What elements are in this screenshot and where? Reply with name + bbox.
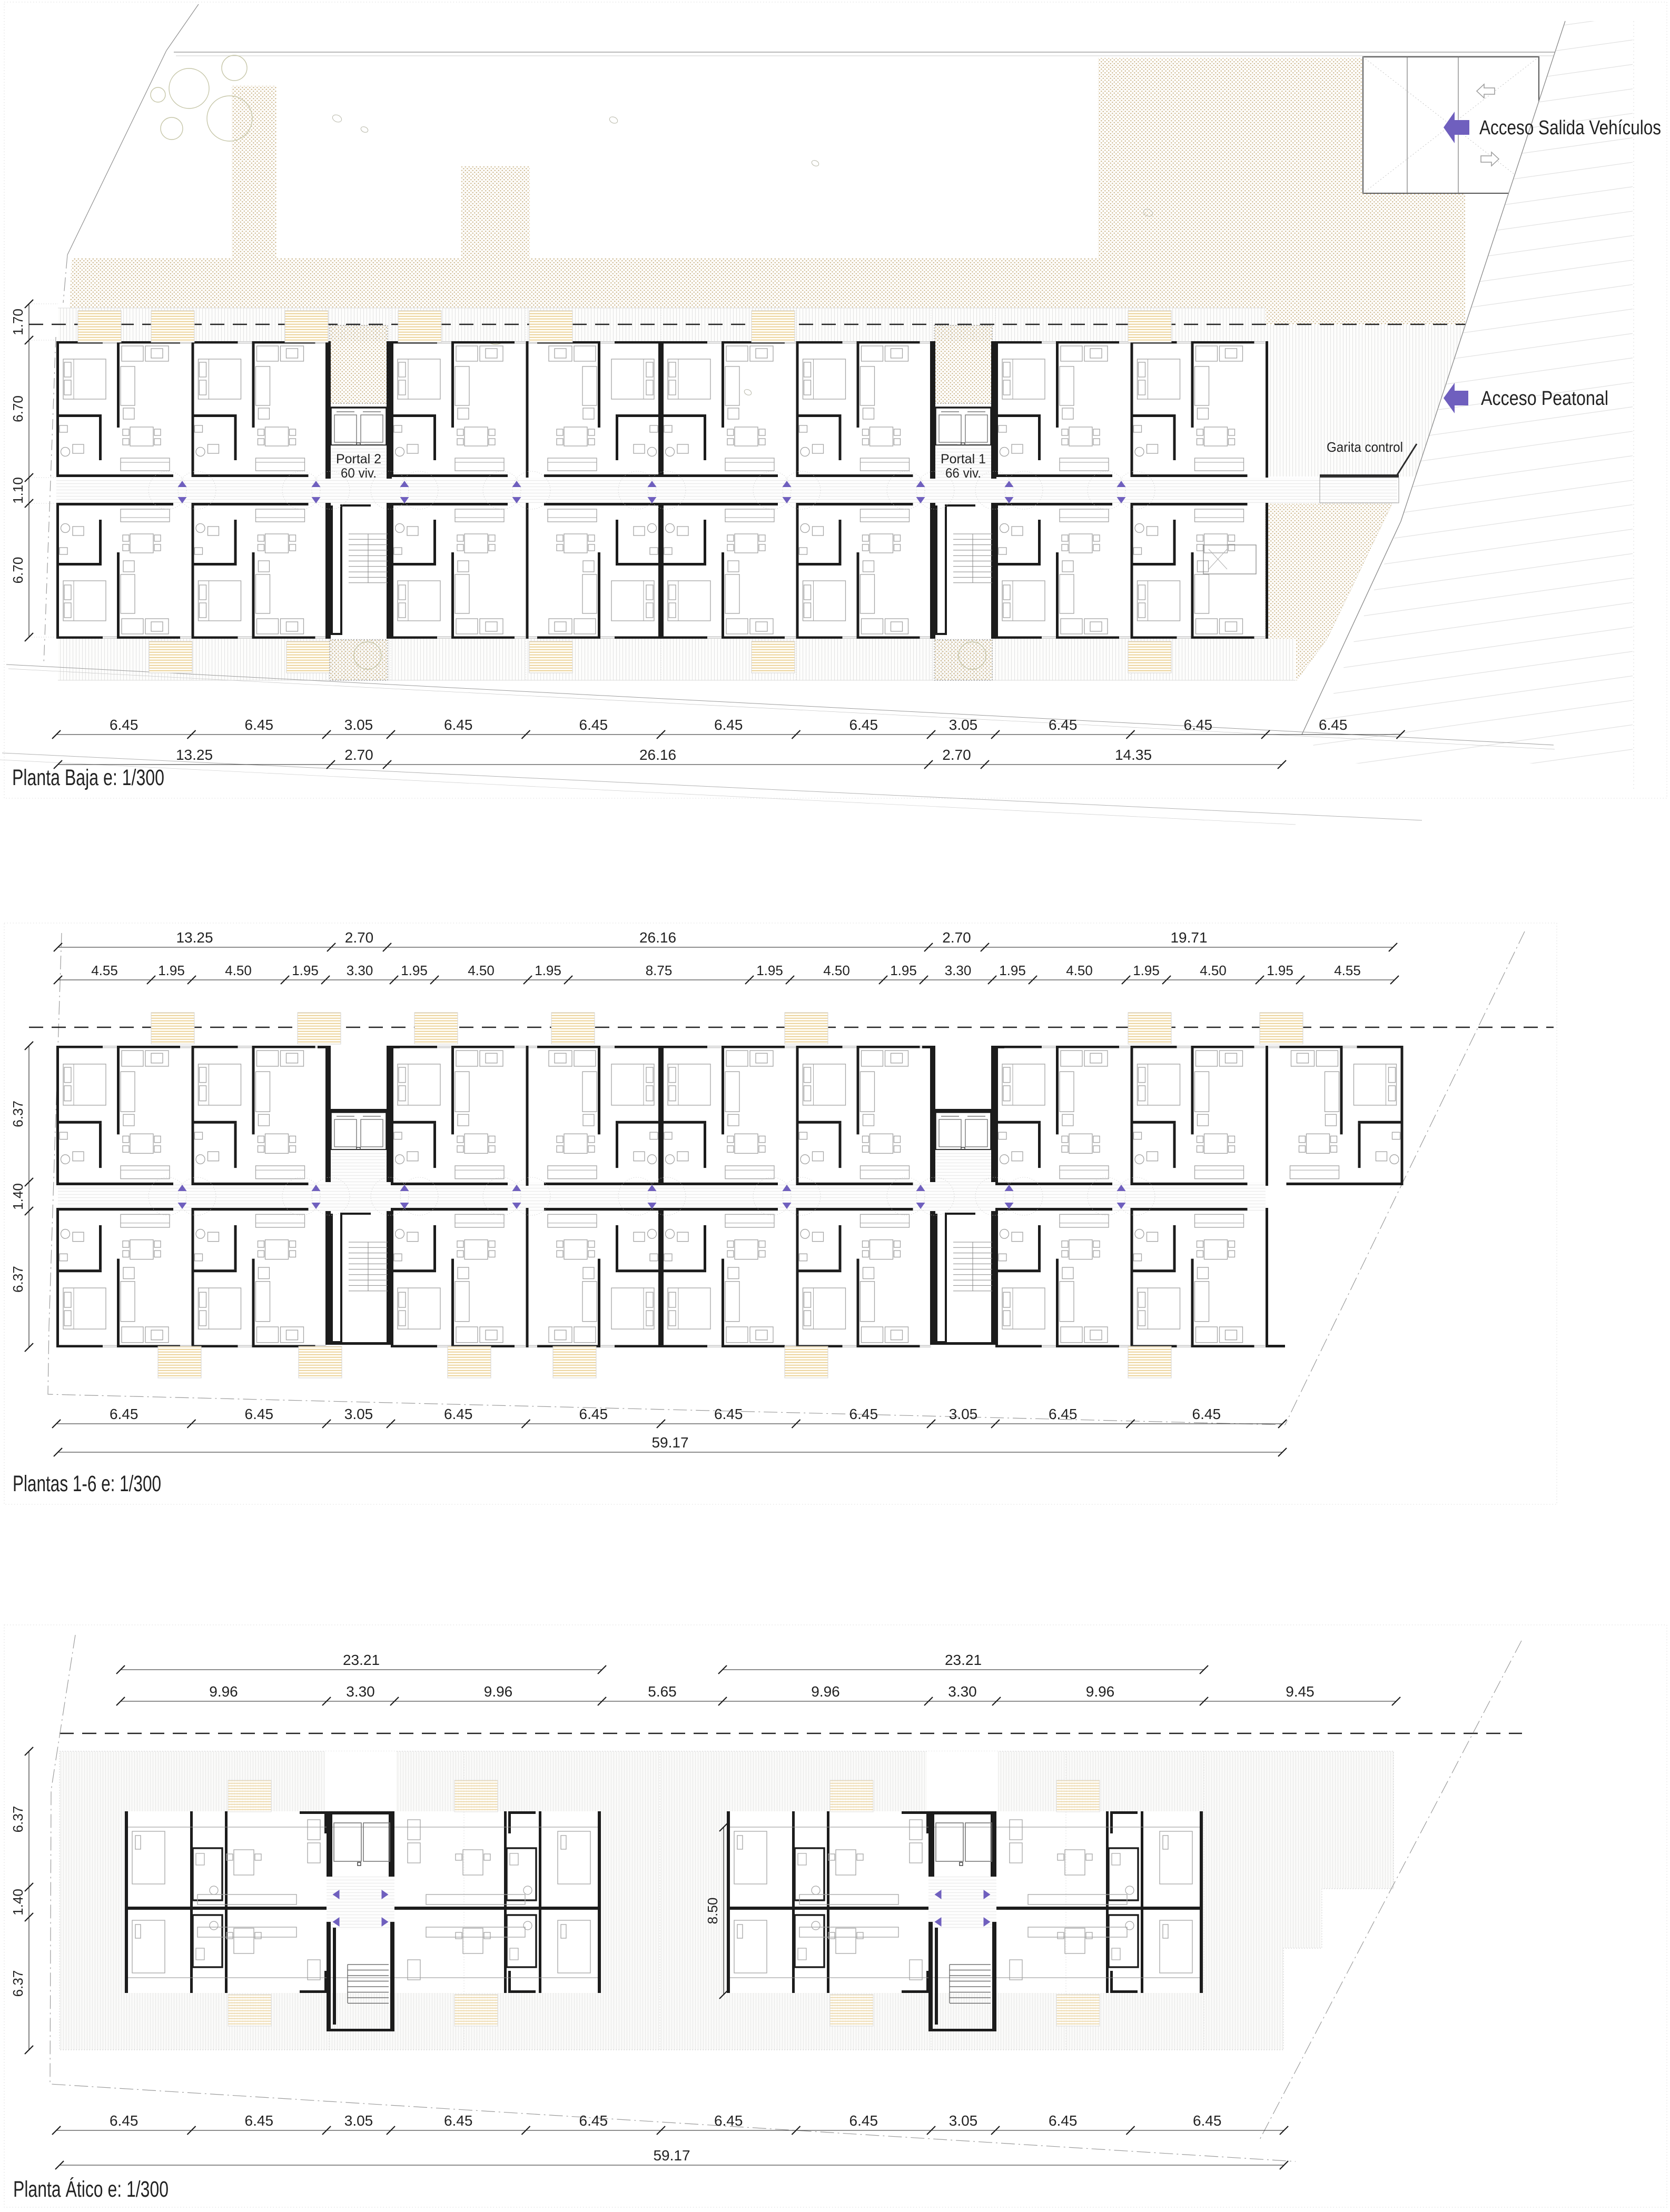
svg-text:59.17: 59.17 bbox=[653, 2147, 690, 2164]
svg-text:6.45: 6.45 bbox=[444, 1406, 473, 1422]
svg-text:6.45: 6.45 bbox=[245, 1406, 274, 1422]
svg-text:23.21: 23.21 bbox=[343, 1652, 380, 1668]
svg-text:6.45: 6.45 bbox=[444, 2112, 473, 2129]
svg-text:6.45: 6.45 bbox=[849, 2112, 878, 2129]
svg-text:Portal 1: Portal 1 bbox=[941, 452, 986, 467]
svg-text:6.70: 6.70 bbox=[10, 395, 26, 422]
svg-text:8.75: 8.75 bbox=[646, 963, 673, 978]
svg-text:6.45: 6.45 bbox=[1049, 2112, 1078, 2129]
svg-text:23.21: 23.21 bbox=[945, 1652, 982, 1668]
svg-text:2.70: 2.70 bbox=[344, 747, 373, 763]
svg-text:6.45: 6.45 bbox=[110, 717, 139, 733]
svg-text:1.95: 1.95 bbox=[292, 963, 319, 978]
svg-text:1.70: 1.70 bbox=[10, 309, 26, 335]
svg-text:8.50: 8.50 bbox=[705, 1898, 720, 1925]
svg-text:5.65: 5.65 bbox=[648, 1683, 677, 1700]
svg-text:6.45: 6.45 bbox=[714, 717, 743, 733]
svg-text:9.96: 9.96 bbox=[811, 1683, 840, 1700]
svg-text:3.05: 3.05 bbox=[949, 717, 978, 733]
svg-text:6.45: 6.45 bbox=[1193, 2112, 1222, 2129]
svg-text:2.70: 2.70 bbox=[942, 929, 971, 946]
svg-text:4.55: 4.55 bbox=[91, 963, 118, 978]
svg-text:9.45: 9.45 bbox=[1286, 1683, 1315, 1700]
svg-text:6.45: 6.45 bbox=[444, 717, 473, 733]
svg-text:1.10: 1.10 bbox=[10, 477, 26, 504]
svg-text:6.45: 6.45 bbox=[110, 2112, 139, 2129]
svg-text:6.45: 6.45 bbox=[1319, 717, 1348, 733]
svg-text:4.50: 4.50 bbox=[1066, 963, 1093, 978]
svg-text:13.25: 13.25 bbox=[176, 929, 213, 946]
svg-text:1.95: 1.95 bbox=[1133, 963, 1160, 978]
svg-text:6.45: 6.45 bbox=[1049, 717, 1078, 733]
svg-text:4.50: 4.50 bbox=[468, 963, 495, 978]
svg-text:1.95: 1.95 bbox=[756, 963, 783, 978]
svg-text:6.45: 6.45 bbox=[579, 717, 608, 733]
svg-text:9.96: 9.96 bbox=[1086, 1683, 1115, 1700]
svg-text:2.70: 2.70 bbox=[942, 747, 971, 763]
svg-text:6.45: 6.45 bbox=[849, 717, 878, 733]
svg-text:6.45: 6.45 bbox=[245, 717, 274, 733]
svg-text:6.45: 6.45 bbox=[110, 1406, 139, 1422]
svg-text:1.40: 1.40 bbox=[10, 1889, 26, 1916]
svg-text:Portal 2: Portal 2 bbox=[336, 452, 381, 467]
svg-text:3.05: 3.05 bbox=[949, 2112, 978, 2129]
svg-text:9.96: 9.96 bbox=[484, 1683, 513, 1700]
svg-text:6.45: 6.45 bbox=[1184, 717, 1213, 733]
svg-text:6.70: 6.70 bbox=[10, 557, 26, 584]
svg-text:4.55: 4.55 bbox=[1334, 963, 1361, 978]
svg-text:3.05: 3.05 bbox=[344, 717, 373, 733]
svg-text:6.37: 6.37 bbox=[10, 1100, 26, 1127]
svg-text:6.45: 6.45 bbox=[849, 1406, 878, 1422]
svg-text:9.96: 9.96 bbox=[209, 1683, 238, 1700]
svg-text:2.70: 2.70 bbox=[345, 929, 374, 946]
svg-text:13.25: 13.25 bbox=[176, 747, 213, 763]
svg-text:6.45: 6.45 bbox=[579, 2112, 608, 2129]
svg-text:6.45: 6.45 bbox=[579, 1406, 608, 1422]
svg-text:1.95: 1.95 bbox=[535, 963, 561, 978]
svg-text:6.45: 6.45 bbox=[714, 1406, 743, 1422]
svg-text:6.45: 6.45 bbox=[714, 2112, 743, 2129]
svg-text:26.16: 26.16 bbox=[639, 929, 676, 946]
svg-text:1.95: 1.95 bbox=[401, 963, 428, 978]
svg-text:14.35: 14.35 bbox=[1115, 747, 1152, 763]
svg-text:3.05: 3.05 bbox=[344, 1406, 373, 1422]
svg-text:59.17: 59.17 bbox=[651, 1434, 688, 1451]
svg-text:3.30: 3.30 bbox=[948, 1683, 977, 1700]
svg-text:Acceso Peatonal: Acceso Peatonal bbox=[1481, 388, 1608, 410]
svg-text:6.37: 6.37 bbox=[10, 1806, 26, 1833]
svg-text:6.45: 6.45 bbox=[245, 2112, 274, 2129]
svg-text:Planta Ático e: 1/300: Planta Ático e: 1/300 bbox=[13, 2177, 169, 2202]
svg-text:19.71: 19.71 bbox=[1170, 929, 1207, 946]
svg-text:4.50: 4.50 bbox=[823, 963, 850, 978]
svg-text:1.95: 1.95 bbox=[890, 963, 917, 978]
svg-text:3.30: 3.30 bbox=[346, 1683, 375, 1700]
svg-text:6.45: 6.45 bbox=[1049, 1406, 1078, 1422]
svg-text:66 viv.: 66 viv. bbox=[945, 466, 981, 481]
svg-text:Garita control: Garita control bbox=[1327, 439, 1403, 455]
svg-text:3.05: 3.05 bbox=[949, 1406, 978, 1422]
svg-text:3.05: 3.05 bbox=[344, 2112, 373, 2129]
svg-text:3.30: 3.30 bbox=[945, 963, 972, 978]
svg-text:1.95: 1.95 bbox=[999, 963, 1026, 978]
svg-text:1.95: 1.95 bbox=[1267, 963, 1293, 978]
svg-text:Plantas 1-6 e: 1/300: Plantas 1-6 e: 1/300 bbox=[13, 1471, 161, 1496]
svg-text:3.30: 3.30 bbox=[347, 963, 373, 978]
svg-text:60 viv.: 60 viv. bbox=[341, 466, 377, 481]
svg-text:4.50: 4.50 bbox=[1200, 963, 1227, 978]
svg-text:26.16: 26.16 bbox=[639, 747, 676, 763]
svg-text:Acceso Salida Vehículos: Acceso Salida Vehículos bbox=[1479, 117, 1661, 139]
svg-text:6.37: 6.37 bbox=[10, 1266, 26, 1293]
svg-text:1.40: 1.40 bbox=[10, 1183, 26, 1210]
svg-text:6.45: 6.45 bbox=[1192, 1406, 1221, 1422]
svg-text:6.37: 6.37 bbox=[10, 1970, 26, 1997]
svg-text:1.95: 1.95 bbox=[158, 963, 185, 978]
svg-text:Planta Baja e: 1/300: Planta Baja e: 1/300 bbox=[12, 765, 164, 790]
svg-text:4.50: 4.50 bbox=[225, 963, 252, 978]
